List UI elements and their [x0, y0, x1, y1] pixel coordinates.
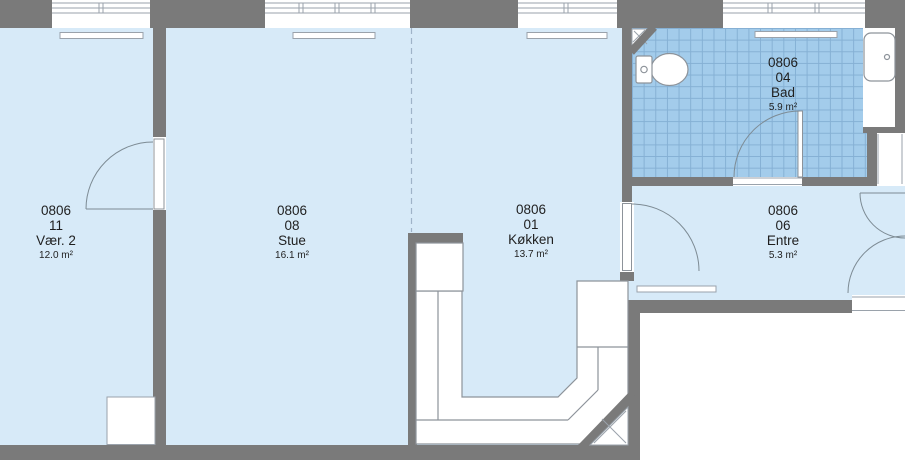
label-bad: 0806 04 Bad 5.9 m²	[768, 55, 798, 114]
room-name: Vær. 2	[36, 233, 76, 248]
wall-koekken-bad	[622, 28, 632, 202]
wall-top-1	[0, 0, 52, 28]
wall-bath-right	[895, 28, 905, 133]
room-bad-tiled-floor	[632, 28, 867, 177]
wall-vaer2-stue-upper	[153, 28, 166, 137]
room-name: Køkken	[508, 232, 554, 247]
floor-plan: 0806 11 Vær. 2 12.0 m² 0806 08 Stue 16.1…	[0, 0, 905, 460]
window-vaer2	[52, 1, 150, 28]
room-name: Entre	[767, 233, 799, 248]
room-area: 13.7 m²	[508, 248, 554, 261]
wall-top-5	[865, 0, 905, 28]
room-name: Stue	[275, 233, 309, 248]
wall-bad-entre-b	[802, 177, 867, 186]
room-unit: 0806	[275, 203, 309, 218]
room-unit: 0806	[36, 203, 76, 218]
wall-kitchen-right-lower	[628, 313, 640, 445]
room-vaer2-floor	[0, 28, 153, 445]
wall-entre-bottom	[620, 300, 852, 313]
room-number: 06	[767, 218, 799, 233]
room-area: 16.1 m²	[275, 249, 309, 262]
room-number: 01	[508, 217, 554, 232]
label-stue: 0806 08 Stue 16.1 m²	[275, 203, 309, 262]
room-area: 5.3 m²	[767, 249, 799, 262]
room-number: 04	[768, 70, 798, 85]
label-koekken: 0806 01 Køkken 13.7 m²	[508, 202, 554, 261]
room-area: 5.9 m²	[768, 101, 798, 114]
room-number: 08	[275, 218, 309, 233]
label-entre: 0806 06 Entre 5.3 m²	[767, 203, 799, 262]
wall-vaer2-stue-lower	[153, 210, 166, 445]
window-stue	[265, 1, 410, 28]
room-unit: 0806	[768, 55, 798, 70]
wall-bottom	[0, 445, 640, 460]
wall-entre-door-stub	[620, 272, 634, 281]
wall-kitchen-left	[408, 243, 417, 445]
label-vaer2: 0806 11 Vær. 2 12.0 m²	[36, 203, 76, 262]
bathtub-niche	[863, 28, 895, 133]
room-unit: 0806	[508, 202, 554, 217]
room-name: Bad	[768, 85, 798, 100]
wall-top-2	[150, 0, 265, 28]
room-area: 12.0 m²	[36, 249, 76, 262]
window-bad	[723, 1, 865, 28]
wall-passage-stub	[867, 133, 877, 186]
opening-passage-right	[877, 133, 905, 186]
room-unit: 0806	[767, 203, 799, 218]
wall-bad-entre-a	[632, 177, 733, 186]
wall-top-3	[410, 0, 518, 28]
room-number: 11	[36, 218, 76, 233]
wall-kitchen-cap	[408, 233, 463, 243]
wall-top-4	[617, 0, 723, 28]
window-koekken	[518, 1, 617, 28]
